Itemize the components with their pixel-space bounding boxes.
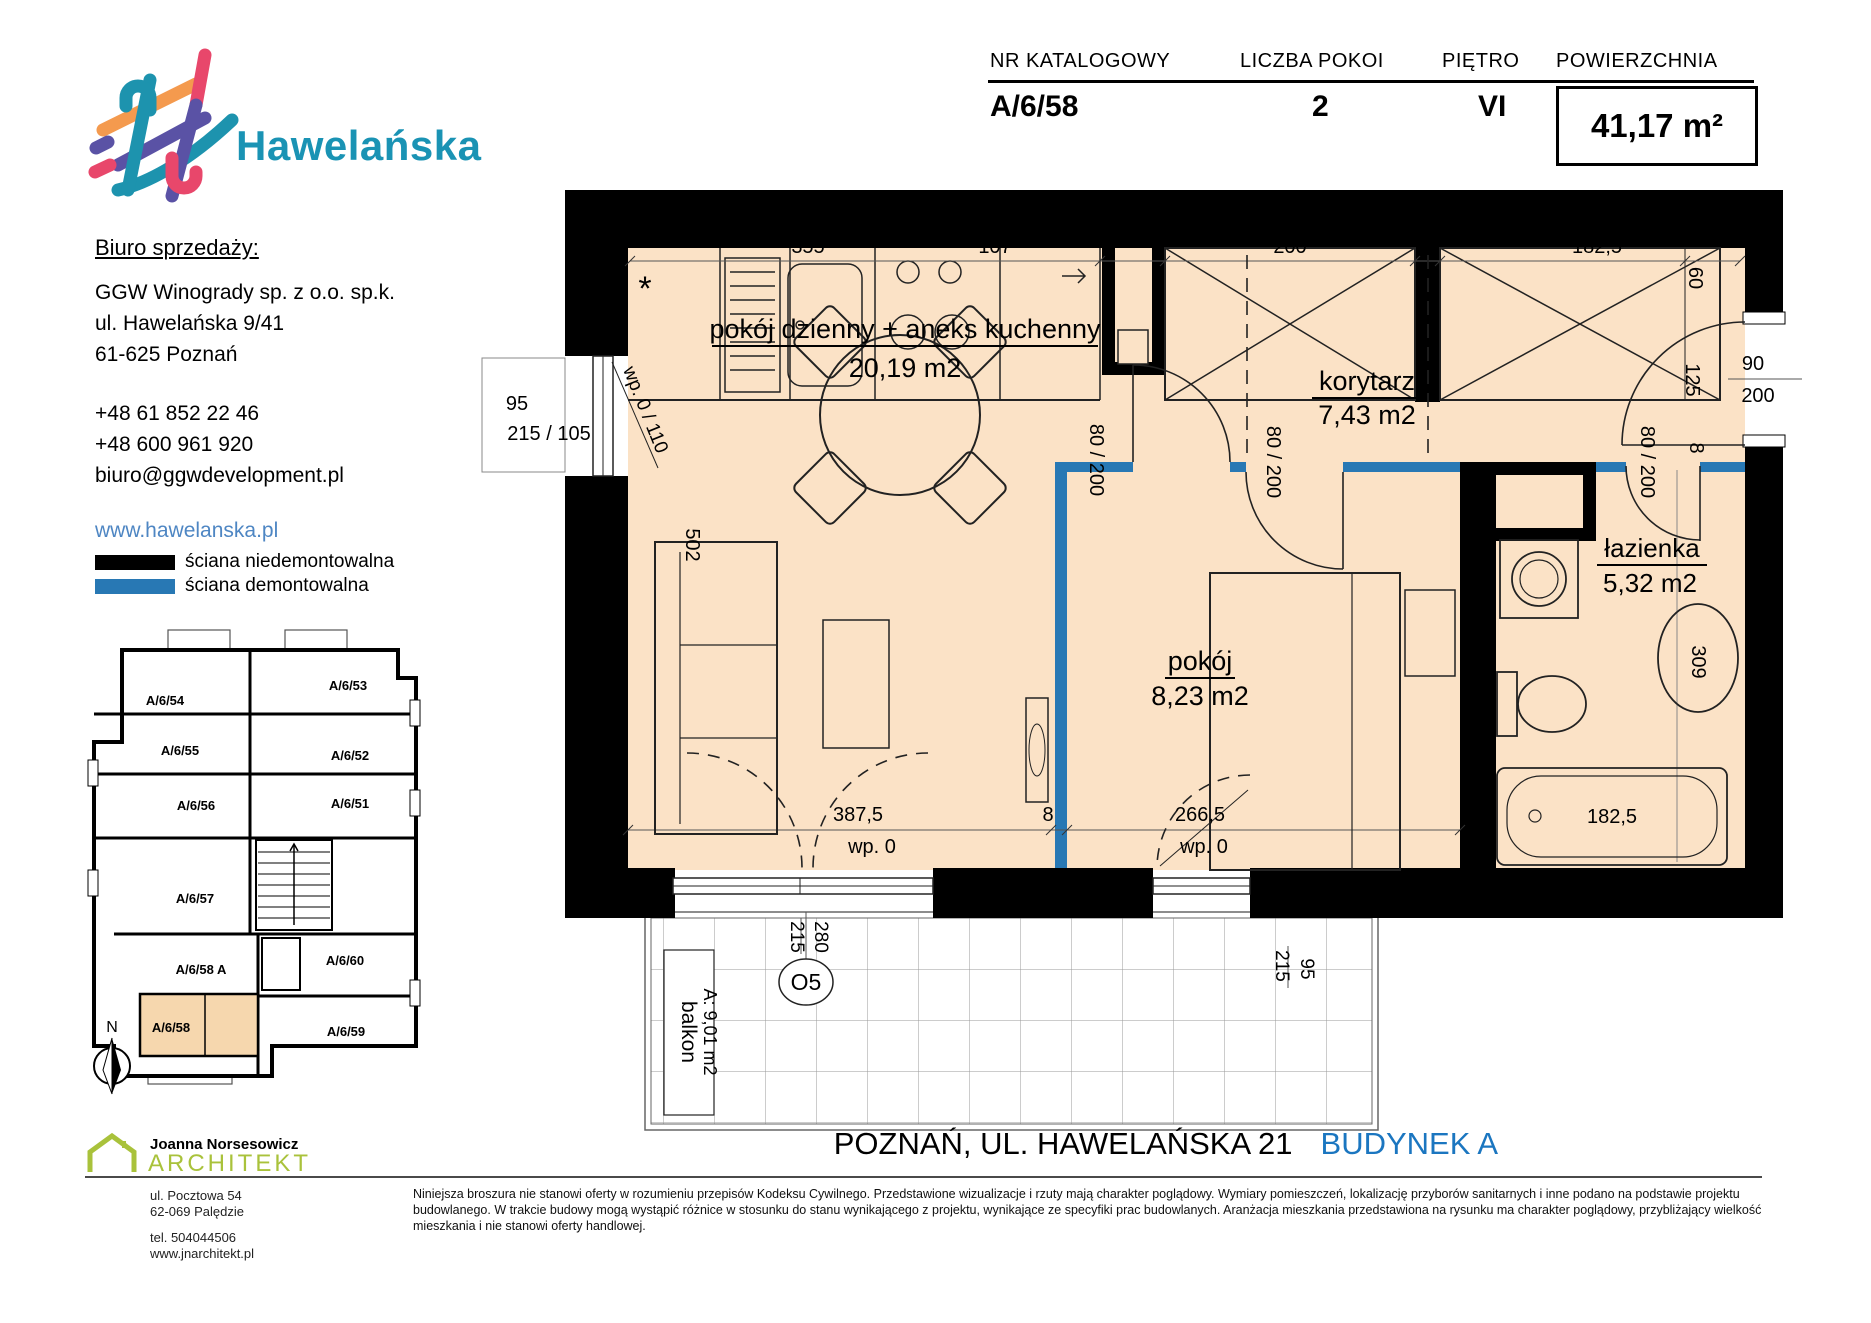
website-link[interactable]: www.hawelanska.pl — [95, 515, 485, 546]
dim: 215 — [1271, 950, 1292, 982]
disclaimer-text: Niniejsza broszura nie stanowi oferty w … — [413, 1186, 1763, 1234]
dim: 8 — [1042, 804, 1053, 826]
catalog-number: A/6/58 — [990, 90, 1078, 124]
dim: wp. 0 — [847, 836, 896, 858]
dim: 266,5 — [1175, 804, 1225, 826]
footer-address: POZNAŃ, UL. HAWELAŃSKA 21 — [834, 1126, 1293, 1162]
dim: 200 — [1741, 385, 1774, 407]
dim: 309 — [1687, 645, 1709, 678]
room-name: pokój — [1168, 646, 1233, 676]
dim: 387,5 — [833, 804, 883, 826]
dim: 80 / 200 — [1262, 426, 1284, 498]
dim: 125 — [1681, 363, 1703, 396]
room-area: 20,19 m2 — [849, 353, 962, 383]
graphics-layer: pokój dzienny + aneks kuchenny 20,19 m2 … — [0, 0, 1871, 1323]
room-name: pokój dzienny + aneks kuchenny — [709, 314, 1101, 344]
unit-label: A/6/59 — [327, 1024, 365, 1039]
rooms-count: 2 — [1312, 90, 1329, 124]
brand-name: Hawelańska — [236, 122, 481, 170]
footer-divider — [85, 1176, 1762, 1178]
building-key-plan: A/6/54 A/6/53 A/6/55 A/6/52 A/6/56 A/6/5… — [88, 630, 420, 1094]
dim: 200 — [1273, 236, 1306, 258]
footer-building: BUDYNEK A — [1321, 1126, 1498, 1162]
sales-office-street: ul. Hawelańska 9/41 — [95, 308, 485, 339]
dim: 502 — [681, 528, 703, 561]
sales-office-block: Biuro sprzedaży: GGW Winogrady sp. z o.o… — [95, 232, 485, 546]
unit-label: A/6/51 — [331, 796, 369, 811]
room-name: łazienka — [1604, 533, 1700, 563]
unit-label-highlighted: A/6/58 — [152, 1020, 190, 1035]
footer-address-row: POZNAŃ, UL. HAWELAŃSKA 21 BUDYNEK A — [834, 1126, 1498, 1162]
sales-office-email: biuro@ggwdevelopment.pl — [95, 460, 485, 491]
unit-label: A/6/57 — [176, 891, 214, 906]
legend-label-non-removable: ściana niedemontowalna — [185, 551, 394, 573]
unit-label: A/6/55 — [161, 743, 199, 758]
unit-label: A/6/56 — [177, 798, 215, 813]
kitchen-star-symbol: * — [638, 270, 651, 308]
total-area-box: 41,17 m² — [1556, 86, 1758, 166]
apartment-floor-plan: pokój dzienny + aneks kuchenny 20,19 m2 … — [482, 190, 1802, 1130]
dim: 280 — [810, 921, 831, 953]
dim: 60 — [1684, 267, 1706, 289]
dim: 107 — [978, 236, 1011, 258]
dim: 95 — [506, 393, 528, 415]
legend-swatch-removable — [95, 579, 175, 594]
dim: 95 — [1296, 958, 1317, 979]
sales-office-city: 61-625 Poznań — [95, 339, 485, 370]
dim: wp. 0 — [1179, 836, 1228, 858]
dim: 90 — [1742, 353, 1764, 375]
legend-swatch-non-removable — [95, 555, 175, 570]
oven-niche-icon — [1118, 330, 1148, 364]
header-divider — [988, 80, 1754, 83]
header-col-nr-katalogowy: NR KATALOGOWY — [990, 50, 1170, 73]
dim: 182,5 — [1572, 236, 1622, 258]
window-mark: O5 — [791, 969, 822, 995]
unit-label: A/6/53 — [329, 678, 367, 693]
sales-office-heading: Biuro sprzedaży: — [95, 232, 485, 263]
sales-office-phone1: +48 61 852 22 46 — [95, 398, 485, 429]
dim: 215 / 105 — [507, 423, 590, 445]
dim: 355 — [791, 236, 824, 258]
unit-label: A/6/58 A — [176, 962, 227, 977]
architect-house-icon — [90, 1136, 134, 1172]
balcony — [645, 912, 1378, 1130]
dim: 215 — [786, 921, 807, 953]
room-name: korytarz — [1319, 366, 1415, 396]
unit-label: A/6/54 — [146, 693, 185, 708]
floor-number: VI — [1478, 90, 1506, 124]
sales-office-phone2: +48 600 961 920 — [95, 429, 485, 460]
unit-label: A/6/52 — [331, 748, 369, 763]
dim: 80 / 200 — [1636, 426, 1658, 498]
dim: 182,5 — [1587, 806, 1637, 828]
dim: 80 / 200 — [1085, 424, 1107, 496]
sales-office-company: GGW Winogrady sp. z o.o. sp.k. — [95, 277, 485, 308]
balcony-name: balkon — [677, 1001, 700, 1063]
dim: 8 — [1685, 442, 1707, 453]
total-area-value: 41,17 m² — [1591, 107, 1723, 145]
brochure-page: pokój dzienny + aneks kuchenny 20,19 m2 … — [0, 0, 1871, 1323]
room-area: 5,32 m2 — [1603, 568, 1697, 598]
balcony-area: A: 9,01 m2 — [700, 988, 720, 1075]
room-area: 8,23 m2 — [1151, 681, 1249, 711]
architect-address: ul. Pocztowa 54 62-069 Palędzie — [150, 1188, 244, 1220]
architect-title: ARCHITEKT — [148, 1150, 311, 1178]
architect-contact: tel. 504044506 www.jnarchitekt.pl — [150, 1230, 254, 1262]
legend-label-removable: ściana demontowalna — [185, 575, 369, 597]
legend: ściana niedemontowalna ściana demontowal… — [95, 550, 394, 598]
header-col-powierzchnia: POWIERZCHNIA — [1556, 50, 1718, 73]
room-area: 7,43 m2 — [1318, 400, 1416, 430]
header-col-pietro: PIĘTRO — [1442, 50, 1519, 73]
compass-north-label: N — [106, 1019, 118, 1036]
hawelanska-logo-icon — [95, 55, 232, 196]
header-col-liczba-pokoi: LICZBA POKOI — [1240, 50, 1384, 73]
unit-label: A/6/60 — [326, 953, 364, 968]
